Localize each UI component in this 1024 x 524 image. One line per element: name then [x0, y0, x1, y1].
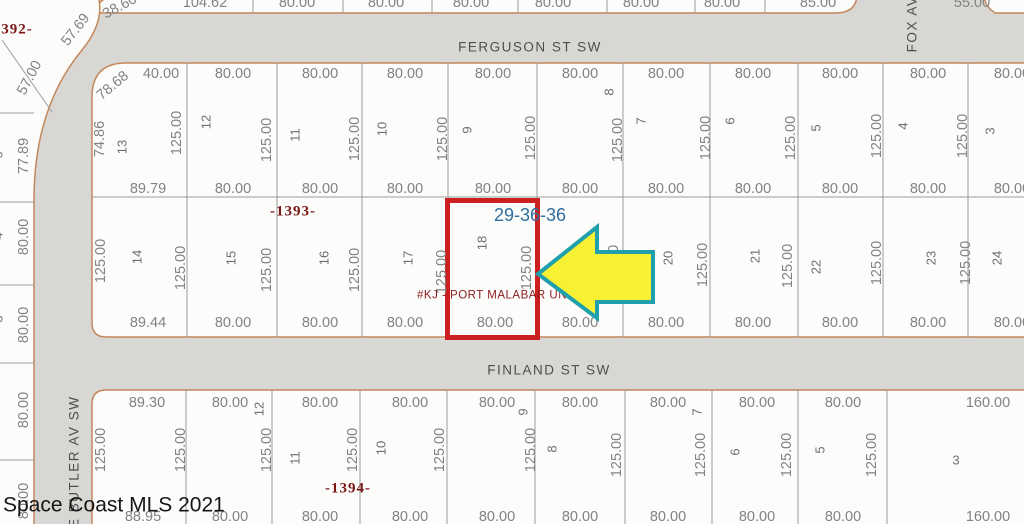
- dimension-label: 125.00: [696, 243, 711, 287]
- dimension-label: 55.00: [954, 0, 990, 10]
- dimension-label: 80.00: [739, 510, 775, 524]
- lot-number: 16: [318, 251, 331, 265]
- dimension-label: 80.00: [735, 316, 771, 331]
- dimension-label: 125.00: [780, 433, 795, 477]
- dimension-label: 77.89: [17, 138, 32, 174]
- plat-page-1393: -1393-: [270, 205, 316, 220]
- lot-number: 6: [0, 151, 5, 158]
- dimension-label: 80.00: [215, 316, 251, 331]
- dimension-label: 80.00: [648, 316, 684, 331]
- street-name-fox: FOX AV: [905, 0, 919, 52]
- dimension-label: 80.00: [704, 0, 740, 10]
- lot-number: 7: [691, 408, 704, 415]
- section-township-range: 29-36-36: [494, 206, 566, 224]
- dimension-label: 38.60: [101, 0, 140, 22]
- dimension-label: 80.00: [822, 182, 858, 197]
- dimension-label: 80.00: [387, 182, 423, 197]
- dimension-label: 80.00: [453, 0, 489, 10]
- dimension-label: 125.00: [260, 248, 275, 292]
- dimension-label: 80.00: [479, 396, 515, 411]
- dimension-label: 80.00: [212, 396, 248, 411]
- lot-number: 6: [729, 448, 742, 455]
- dimension-label: 57.69: [59, 11, 93, 49]
- dimension-label: 125.00: [348, 248, 363, 292]
- dimension-label: 80.00: [994, 67, 1024, 82]
- dimension-label: 80.00: [475, 67, 511, 82]
- lot-number: 12: [253, 402, 266, 416]
- dimension-label: 80.00: [822, 67, 858, 82]
- dimension-label: 125.00: [435, 250, 450, 294]
- lot-number: 4: [897, 122, 910, 129]
- dimension-label: 125.00: [170, 111, 185, 155]
- plat-page-1394: -1394-: [325, 482, 371, 497]
- highlighted-lot-number: 18: [476, 236, 489, 250]
- lot-number: 3: [984, 127, 997, 134]
- dimension-label: 125.00: [346, 428, 361, 472]
- dimension-label: 80.00: [387, 67, 423, 82]
- lot-number: 4: [0, 232, 5, 239]
- lot-number: 13: [116, 140, 129, 154]
- dimension-label: 80.00: [479, 510, 515, 524]
- dimension-label: 80.00: [648, 67, 684, 82]
- dimension-label: 125.00: [870, 114, 885, 158]
- plat-map: 38.60104.6280.0080.0080.0080.0080.0080.0…: [0, 0, 1024, 524]
- dimension-label: 80.00: [302, 510, 338, 524]
- dimension-label: 80.00: [392, 396, 428, 411]
- dimension-label: 160.00: [966, 510, 1010, 524]
- dimension-label: 80.00: [17, 392, 32, 428]
- dimension-label: 80.00: [739, 396, 775, 411]
- dimension-label: 125.00: [260, 428, 275, 472]
- lot-number: 17: [402, 251, 415, 265]
- dimension-label: 80.00: [562, 396, 598, 411]
- dimension-label: 125.00: [694, 433, 709, 477]
- lot-number: 8: [546, 445, 559, 452]
- dimension-label: 80.00: [302, 67, 338, 82]
- dimension-label: 80.00: [387, 316, 423, 331]
- dimension-label: 125.00: [524, 116, 539, 160]
- dimension-label: 80.00: [623, 0, 659, 10]
- dimension-label: 125.00: [611, 118, 626, 162]
- dimension-label: 40.00: [143, 67, 179, 82]
- lot-number: 3: [0, 315, 5, 322]
- watermark: Space Coast MLS 2021: [3, 495, 225, 516]
- lot-number: 10: [375, 441, 388, 455]
- dimension-label: 80.00: [562, 316, 598, 331]
- dimension-label: 80.00: [825, 396, 861, 411]
- dimension-label: 125.00: [784, 116, 799, 160]
- lot-number: 5: [814, 446, 827, 453]
- street-name-finland: FINLAND ST SW: [487, 363, 611, 377]
- dimension-label: 125.00: [781, 244, 796, 288]
- dimension-label: 125.00: [260, 118, 275, 162]
- dimension-label: 80.00: [302, 396, 338, 411]
- dimension-label: 80.00: [535, 0, 571, 10]
- dimension-label: 80.00: [17, 307, 32, 343]
- street-name-ferguson: FERGUSON ST SW: [458, 40, 602, 54]
- dimension-label: 104.62: [183, 0, 227, 10]
- dimension-label: 80.00: [650, 510, 686, 524]
- dimension-label: 80.00: [562, 67, 598, 82]
- dimension-label: 160.00: [966, 396, 1010, 411]
- dimension-label: 125.00: [94, 428, 109, 472]
- dimension-label: 85.00: [800, 0, 836, 10]
- dimension-label: 57.00: [15, 59, 45, 98]
- lot-number: 10: [376, 122, 389, 136]
- lot-number: 24: [991, 251, 1004, 265]
- dimension-label: 80.00: [910, 182, 946, 197]
- dimension-label: 80.00: [994, 316, 1024, 331]
- dimension-label: 125.00: [174, 246, 189, 290]
- dimension-label: 80.00: [735, 67, 771, 82]
- dimension-label: 80.00: [825, 510, 861, 524]
- dimension-label: 80.00: [650, 396, 686, 411]
- dimension-label: 80.00: [910, 67, 946, 82]
- dimension-label: 80.00: [562, 182, 598, 197]
- subdivision-legal-text: #KJ - PORT MALABAR UNIT: [417, 290, 578, 302]
- dimension-label: 89.44: [130, 316, 166, 331]
- dimension-label: 80.00: [17, 219, 32, 255]
- dimension-label: 125.00: [433, 428, 448, 472]
- lot-number: 7: [635, 117, 648, 124]
- dimension-label: 80.00: [302, 182, 338, 197]
- dimension-label: 125.00: [520, 246, 535, 290]
- lot-number: 15: [225, 251, 238, 265]
- lot-number: 22: [810, 260, 823, 274]
- lot-number: 3: [952, 454, 959, 467]
- dimension-label: 80.00: [368, 0, 404, 10]
- dimension-label: 125.00: [94, 239, 109, 283]
- lot-number: 20: [662, 251, 675, 265]
- dimension-label: 125.00: [174, 428, 189, 472]
- dimension-label: 80.00: [562, 510, 598, 524]
- lot-number: 23: [925, 251, 938, 265]
- dimension-label: 125.00: [959, 241, 974, 285]
- dimension-label: 80.00: [822, 316, 858, 331]
- dimension-label: 80.00: [215, 67, 251, 82]
- lot-number: 8: [603, 88, 616, 95]
- lot-number: 12: [200, 115, 213, 129]
- dimension-label: 80.00: [477, 316, 513, 331]
- dimension-label: 125.00: [436, 117, 451, 161]
- lot-number: 14: [131, 250, 144, 264]
- dimension-label: 125.00: [699, 116, 714, 160]
- dimension-label: 125.00: [524, 428, 539, 472]
- lot-number: 21: [749, 249, 762, 263]
- dimension-label: 89.79: [130, 182, 166, 197]
- dimension-label: 80.00: [910, 316, 946, 331]
- dimension-label: 80.00: [215, 182, 251, 197]
- plat-page-392: 392-: [1, 23, 33, 38]
- dimension-label: 80.00: [994, 182, 1024, 197]
- dimension-label: 78.68: [94, 69, 131, 103]
- dimension-label: 125.00: [956, 114, 971, 158]
- dimension-label: 74.86: [93, 121, 108, 157]
- dimension-label: 125.00: [348, 117, 363, 161]
- lot-number: 9: [517, 408, 530, 415]
- dimension-label: 80.00: [392, 510, 428, 524]
- lot-number: 6: [724, 117, 737, 124]
- lot-number: 5: [810, 124, 823, 131]
- dimension-label: 89.30: [129, 396, 165, 411]
- dimension-label: 80.00: [648, 182, 684, 197]
- lot-number: 11: [289, 451, 302, 465]
- map-labels: 38.60104.6280.0080.0080.0080.0080.0080.0…: [0, 0, 1024, 524]
- dimension-label: 80.00: [302, 316, 338, 331]
- dimension-label: 80.00: [279, 0, 315, 10]
- dimension-label: 125.00: [865, 433, 880, 477]
- dimension-label: 80.00: [735, 182, 771, 197]
- dimension-label: 125.00: [607, 245, 622, 289]
- lot-number: 11: [289, 128, 302, 142]
- dimension-label: 125.00: [870, 241, 885, 285]
- lot-number: 9: [461, 126, 474, 133]
- dimension-label: 80.00: [475, 182, 511, 197]
- dimension-label: 125.00: [610, 433, 625, 477]
